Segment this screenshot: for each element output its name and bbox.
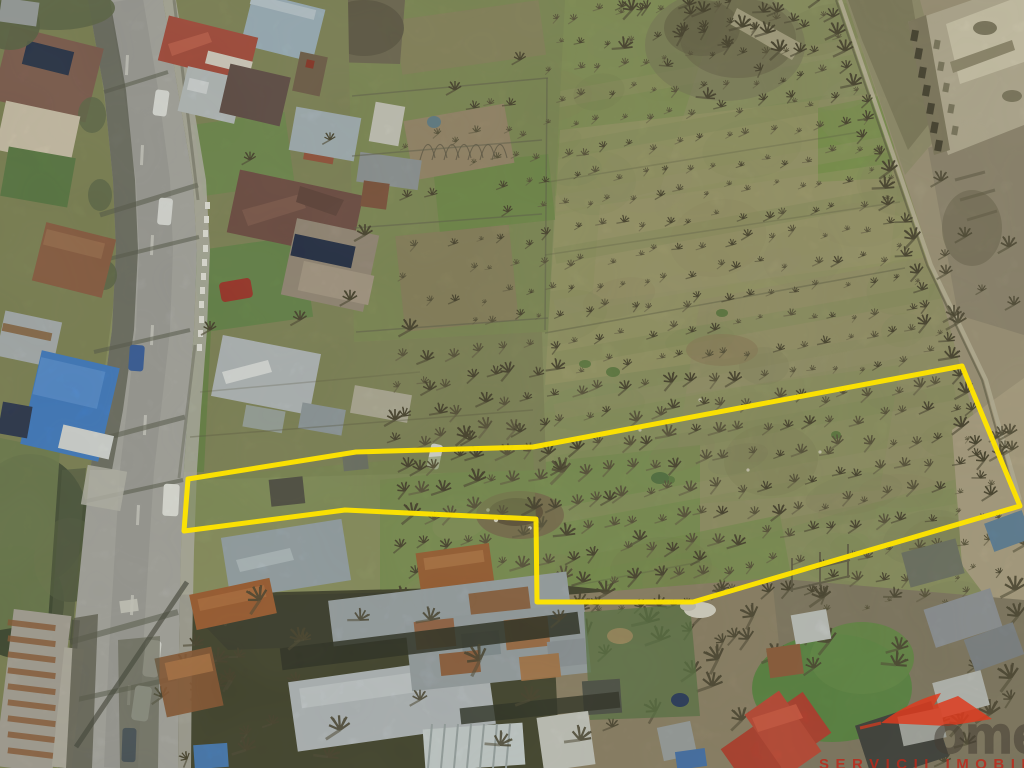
svg-text:SERVICII IMOBILIARE: SERVICII IMOBILIARE xyxy=(819,756,1024,768)
